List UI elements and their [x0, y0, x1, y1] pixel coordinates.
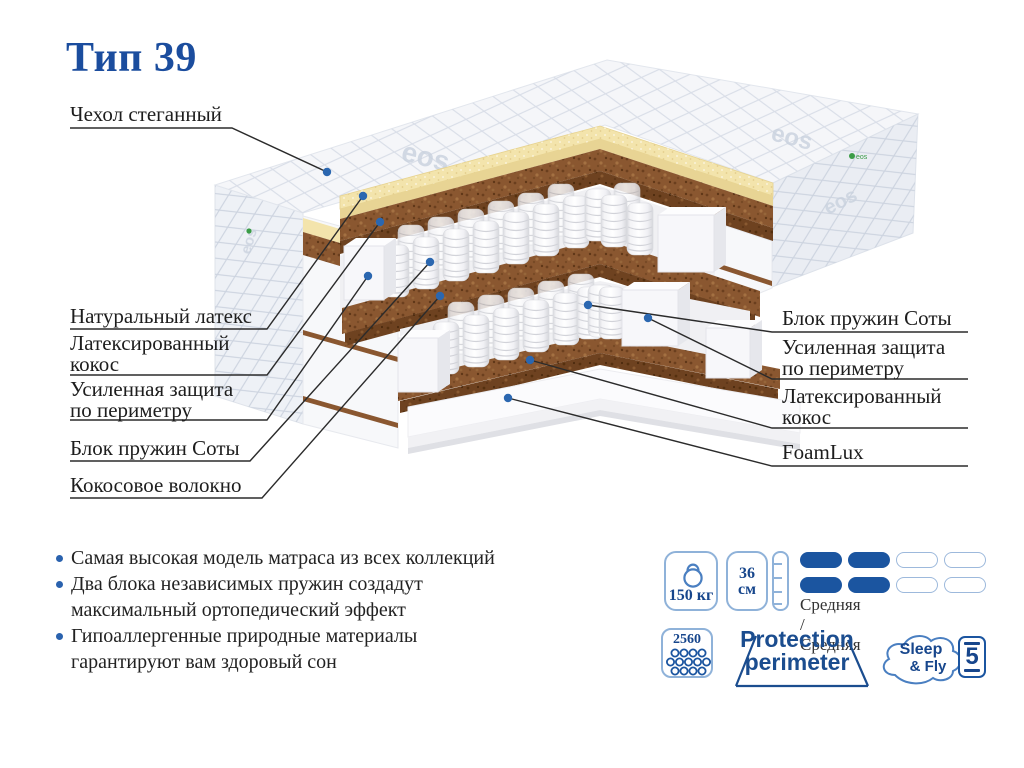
firmness-pill-filled: [848, 577, 890, 593]
kettlebell-icon: [680, 558, 706, 588]
foam-corner-block: [344, 238, 396, 300]
callout-label-cover: Чехол стеганный: [70, 104, 290, 125]
brand-badge: Sleep & Fly: [875, 628, 967, 688]
warranty-badge: 5: [958, 636, 986, 678]
height-unit: см: [728, 582, 766, 598]
firmness-pill-filled: [800, 577, 842, 593]
callout-label-springs-right: Блок пружин Соты: [782, 308, 982, 329]
callout-dot: [644, 314, 652, 322]
callout-label-latex: Натуральный латекс: [70, 306, 300, 327]
feature-list: Самая высокая модель матраса из всех кол…: [56, 545, 526, 675]
callout-label-foamlux: FoamLux: [782, 442, 932, 463]
callout-label-perimeter-left: Усиленная защита по периметру: [70, 379, 260, 421]
callout-dot: [584, 301, 592, 309]
foam-corner-block: [658, 207, 726, 272]
foam-corner-block: [622, 282, 690, 346]
page-title: Тип 39: [66, 34, 197, 82]
callout-label-springs-left: Блок пружин Соты: [70, 438, 290, 459]
firmness-pill-filled: [848, 552, 890, 568]
infographic-page: { "title": "Тип 39", "watermark": "eos",…: [0, 0, 1024, 768]
firmness-pill-empty: [896, 577, 938, 593]
feature-item: Два блока независимых пружин создадут ма…: [56, 571, 526, 623]
callout-dot: [376, 218, 384, 226]
warranty-years: 5: [965, 646, 978, 668]
height-value: 36: [728, 566, 766, 582]
protection-line1: Protection: [722, 628, 872, 651]
height-badge: 36 см: [726, 551, 768, 611]
callout-dot: [364, 272, 372, 280]
warranty-bottom-line: [964, 669, 980, 672]
firmness-pill-filled: [800, 552, 842, 568]
springs-grid-icon: [666, 648, 711, 676]
brand-line1: Sleep: [875, 641, 967, 659]
springs-count-value: 2560: [663, 632, 711, 648]
springs-count-badge: 2560: [661, 628, 713, 678]
firmness-pill-empty: [896, 552, 938, 568]
callout-dot: [504, 394, 512, 402]
protection-perimeter-badge: Protection perimeter: [722, 628, 872, 690]
protection-line2: perimeter: [722, 651, 872, 674]
callout-dot: [426, 258, 434, 266]
max-load-badge: 150 кг: [664, 551, 718, 611]
foam-corner-block: [398, 330, 450, 392]
callout-label-latex-coir-left: Латексированный кокос: [70, 333, 260, 375]
callout-dot: [436, 292, 444, 300]
firmness-pill-empty: [944, 577, 986, 593]
feature-item: Гипоаллергенные природные материалы гара…: [56, 623, 526, 675]
callout-dot: [359, 192, 367, 200]
callout-label-perimeter-right: Усиленная защита по периметру: [782, 337, 972, 379]
callout-dot: [526, 356, 534, 364]
firmness-pill-empty: [944, 552, 986, 568]
brand-line2: & Fly: [889, 658, 967, 675]
callout-label-coconut-fiber: Кокосовое волокно: [70, 475, 300, 496]
feature-item: Самая высокая модель матраса из всех кол…: [56, 545, 526, 571]
callout-label-latex-coir-right: Латексированный кокос: [782, 386, 972, 428]
max-load-value: 150 кг: [666, 587, 716, 605]
svg-text:eos: eos: [856, 154, 868, 161]
ruler-icon: [772, 551, 789, 611]
callout-dot: [323, 168, 331, 176]
